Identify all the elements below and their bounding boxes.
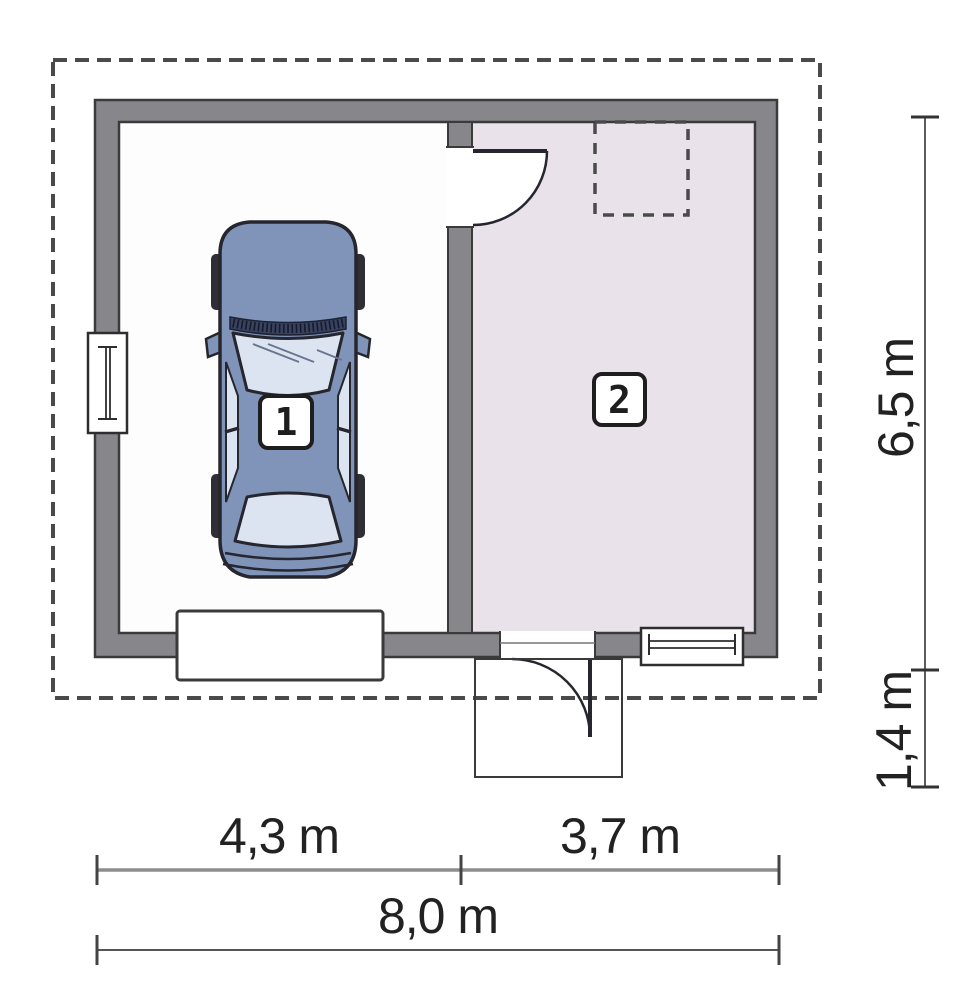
floor-plan-drawing: 6,5 m 1,4 m 4,3 m 3,7 m 8,0 m	[0, 0, 969, 1000]
floor-plan-canvas: 6,5 m 1,4 m 4,3 m 3,7 m 8,0 m 1 2	[0, 0, 969, 1000]
interior-door-opening	[446, 147, 474, 227]
car-windshield	[233, 333, 343, 396]
window-left	[88, 333, 127, 433]
dimension-label-room2-width: 3,7 m	[560, 808, 680, 864]
window-bottom-right	[641, 628, 743, 665]
dimension-label-porch-depth: 1,4 m	[866, 671, 922, 791]
garage-door	[177, 611, 383, 680]
room-2-label: 2	[592, 372, 647, 427]
window-bottom-frame	[641, 628, 743, 665]
dimension-right: 6,5 m 1,4 m	[866, 117, 939, 791]
room-1-label: 1	[258, 394, 314, 450]
dimension-bottom: 4,3 m 3,7 m 8,0 m	[97, 808, 779, 965]
dimension-label-room1-width: 4,3 m	[219, 808, 339, 864]
dimension-label-total-width: 8,0 m	[378, 888, 498, 944]
dimension-label-height: 6,5 m	[868, 338, 924, 458]
entry-door-opening	[500, 631, 595, 659]
entry-door	[500, 631, 595, 737]
entry-porch	[475, 659, 622, 777]
car-rear-window	[235, 493, 341, 547]
